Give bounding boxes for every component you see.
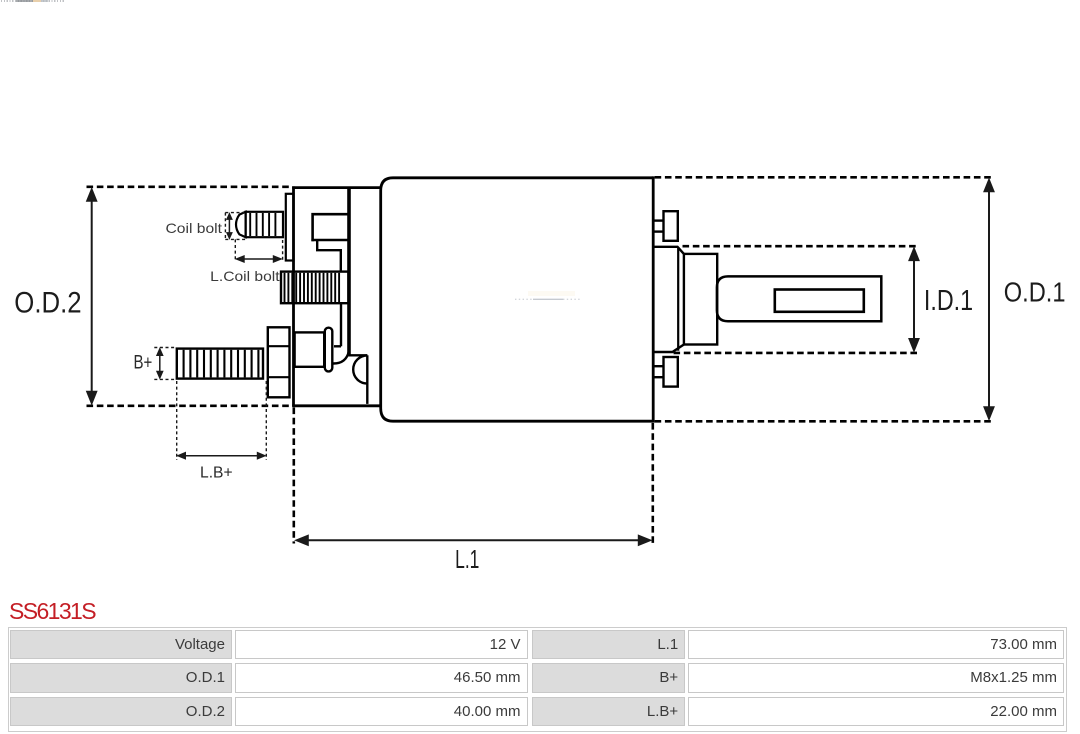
svg-text:L.Coil bolt: L.Coil bolt — [210, 268, 280, 284]
svg-text:B+: B+ — [134, 351, 153, 373]
svg-text:L.1: L.1 — [455, 544, 479, 574]
svg-text:I.D.1: I.D.1 — [924, 285, 973, 317]
svg-text:O.D.2: O.D.2 — [14, 287, 81, 320]
svg-text:O.D.1: O.D.1 — [1004, 276, 1066, 307]
svg-text:L.B+: L.B+ — [200, 465, 233, 482]
svg-text:Coil bolt: Coil bolt — [166, 220, 223, 236]
